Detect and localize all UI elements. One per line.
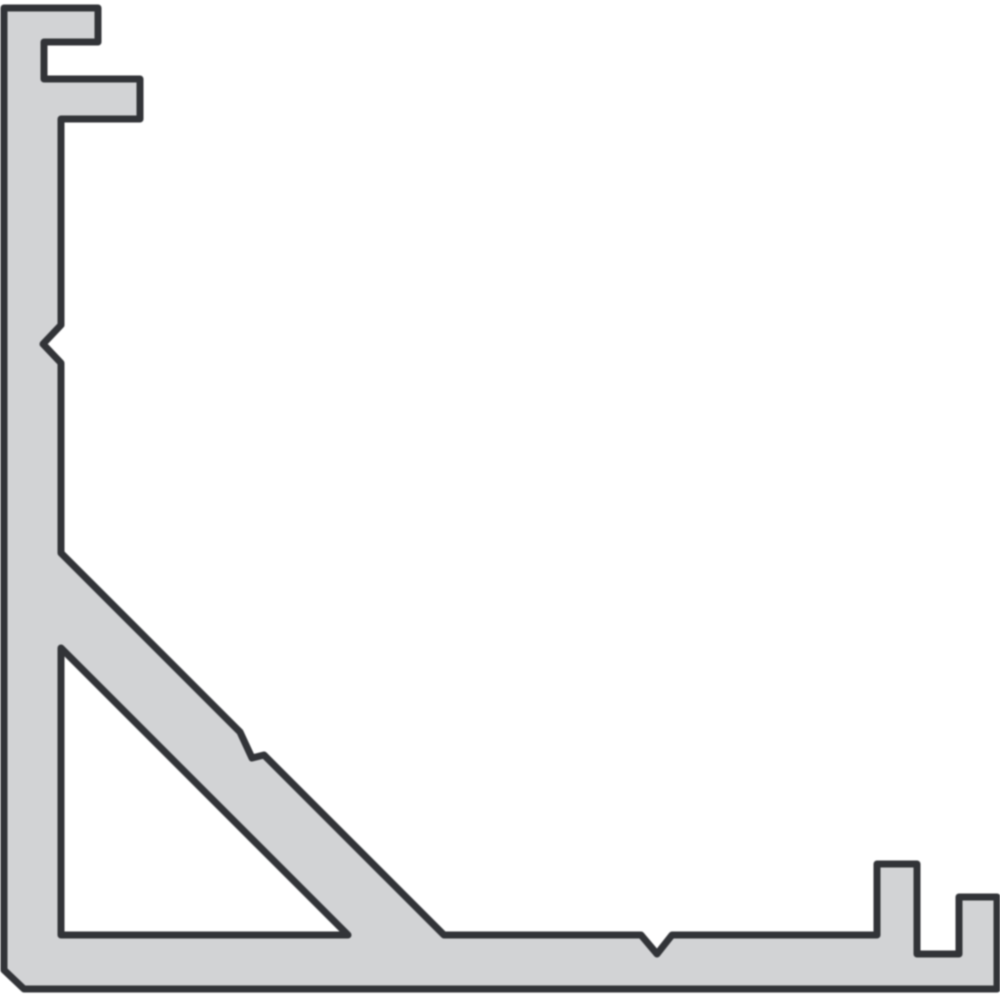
figure-stage xyxy=(0,0,1000,1000)
profile-cross-section-diagram xyxy=(0,0,1000,1000)
profile-outline-shape xyxy=(4,8,997,989)
